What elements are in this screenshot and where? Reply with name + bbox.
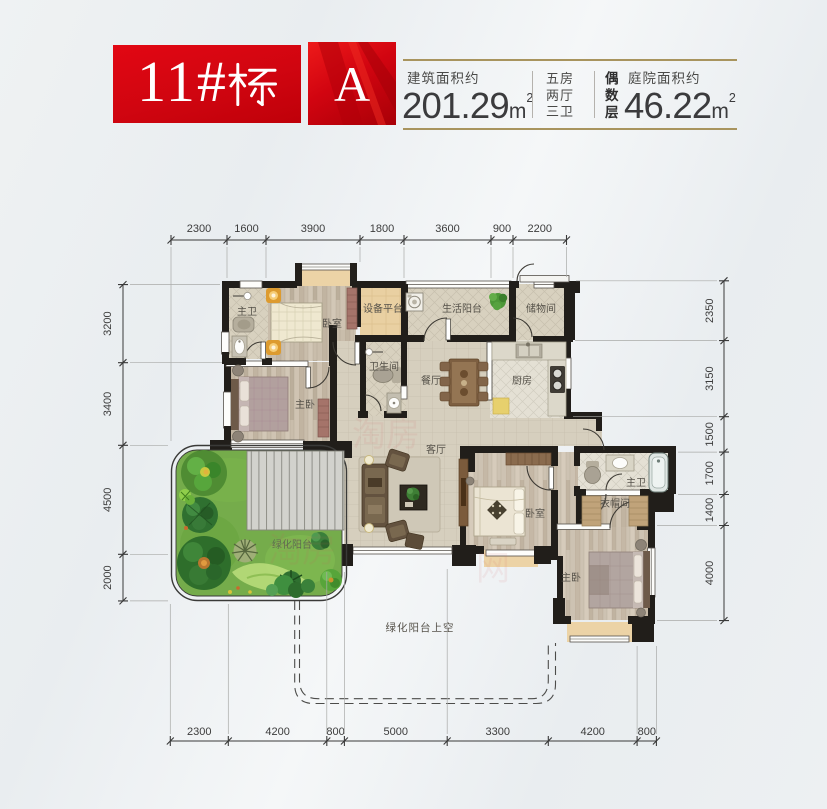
svg-text:卧室: 卧室 (322, 317, 342, 330)
svg-text:网: 网 (476, 550, 510, 588)
svg-text:800: 800 (638, 726, 656, 738)
svg-text:4200: 4200 (580, 726, 604, 738)
svg-text:2350: 2350 (704, 298, 716, 322)
svg-text:1500: 1500 (704, 422, 716, 446)
svg-text:绿化阳台上空: 绿化阳台上空 (386, 621, 455, 634)
svg-text:1800: 1800 (370, 223, 394, 235)
svg-text:生活阳台: 生活阳台 (442, 302, 482, 315)
svg-text:2300: 2300 (187, 223, 211, 235)
svg-text:餐厅: 餐厅 (421, 374, 441, 387)
svg-text:3600: 3600 (435, 223, 459, 235)
svg-text:4200: 4200 (265, 726, 289, 738)
svg-text:厨房: 厨房 (512, 374, 532, 387)
svg-text:2300: 2300 (187, 726, 211, 738)
svg-text:主卧: 主卧 (295, 398, 315, 411)
svg-text:卧室: 卧室 (525, 507, 545, 520)
svg-text:设备平台: 设备平台 (363, 302, 403, 315)
svg-text:3400: 3400 (102, 392, 114, 416)
svg-text:衣帽间: 衣帽间 (600, 497, 630, 510)
svg-text:主卫: 主卫 (626, 477, 646, 489)
svg-text:2000: 2000 (102, 565, 114, 589)
svg-text:2200: 2200 (528, 223, 552, 235)
svg-text:客厅: 客厅 (426, 443, 446, 456)
svg-text:淘房: 淘房 (268, 532, 336, 570)
svg-text:淘房: 淘房 (352, 416, 420, 454)
svg-text:3900: 3900 (301, 223, 325, 235)
svg-text:1700: 1700 (704, 461, 716, 485)
svg-text:3300: 3300 (486, 726, 510, 738)
svg-text:900: 900 (493, 223, 511, 235)
svg-text:主卫: 主卫 (237, 306, 257, 318)
svg-text:1400: 1400 (704, 498, 716, 522)
svg-text:4500: 4500 (102, 488, 114, 512)
svg-text:3200: 3200 (102, 311, 114, 335)
svg-text:800: 800 (326, 726, 344, 738)
svg-text:卫生间: 卫生间 (369, 360, 399, 373)
svg-text:主卧: 主卧 (561, 571, 581, 584)
svg-text:1600: 1600 (234, 223, 258, 235)
svg-text:4000: 4000 (704, 561, 716, 585)
svg-text:储物间: 储物间 (526, 302, 556, 315)
svg-text:5000: 5000 (384, 726, 408, 738)
svg-text:3150: 3150 (704, 366, 716, 390)
